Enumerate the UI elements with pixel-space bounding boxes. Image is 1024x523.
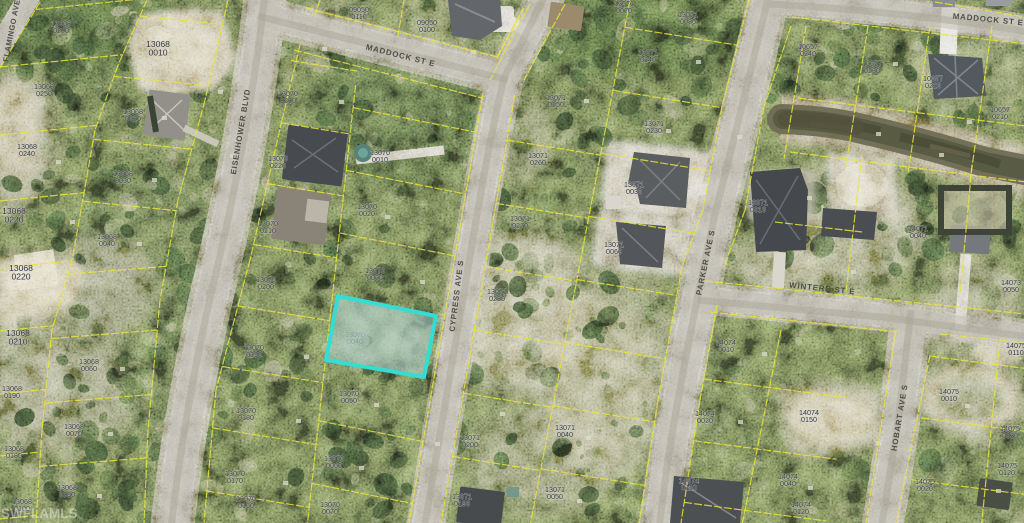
svg-text:130700060: 130700060 (324, 454, 344, 470)
svg-text:130680190: 130680190 (2, 384, 22, 400)
svg-text:140740110: 140740110 (679, 476, 699, 492)
svg-text:130700210: 130700210 (258, 219, 278, 235)
svg-text:130680230: 130680230 (2, 206, 26, 225)
svg-text:130710270: 130710270 (510, 214, 530, 230)
svg-text:130700050: 130700050 (339, 389, 359, 405)
svg-text:SWFLAMLS: SWFLAMLS (1, 506, 78, 521)
svg-text:140750010: 140750010 (939, 387, 959, 403)
svg-text:130710070: 130710070 (614, 0, 634, 15)
svg-text:130680020: 130680020 (123, 107, 143, 123)
svg-text:130710260: 130710260 (528, 151, 548, 167)
svg-text:130710060: 130710060 (604, 240, 624, 256)
svg-text:130710010: 130710010 (748, 198, 768, 214)
svg-text:130680180: 130680180 (4, 444, 24, 460)
svg-text:140750110: 140750110 (1006, 341, 1024, 357)
svg-text:130680090: 130680090 (57, 483, 77, 499)
svg-text:140740040: 140740040 (778, 472, 798, 488)
svg-text:130700200: 130700200 (256, 275, 276, 291)
svg-text:130700010: 130700010 (370, 148, 390, 164)
svg-text:130680250: 130680250 (34, 82, 54, 98)
svg-text:090500100: 090500100 (417, 18, 437, 34)
svg-text:130680010: 130680010 (146, 39, 170, 58)
svg-text:130710040: 130710040 (555, 423, 575, 439)
svg-text:130710200: 130710200 (460, 433, 480, 449)
svg-text:130710080: 130710080 (678, 10, 698, 26)
svg-text:130680220: 130680220 (9, 263, 33, 282)
svg-text:140710040: 140710040 (908, 224, 928, 240)
svg-text:130710280: 130710280 (487, 287, 507, 303)
svg-text:130710030: 130710030 (624, 180, 644, 196)
svg-text:130700190: 130700190 (244, 343, 264, 359)
svg-text:140740020: 140740020 (695, 409, 715, 425)
svg-text:130680060: 130680060 (79, 357, 99, 373)
svg-text:140740150: 140740150 (799, 408, 819, 424)
svg-text:130710050: 130710050 (545, 485, 565, 501)
svg-text:130680030: 130680030 (113, 169, 133, 185)
svg-text:140730050: 140730050 (1001, 278, 1021, 294)
svg-text:130710250: 130710250 (546, 93, 566, 109)
svg-text:130680040: 130680040 (97, 232, 117, 248)
svg-text:140740120: 140740120 (791, 500, 811, 516)
svg-text:130710240: 130710240 (638, 48, 658, 64)
svg-text:130700170: 130700170 (225, 469, 245, 485)
svg-text:130700070: 130700070 (320, 500, 340, 516)
svg-text:130710190: 130710190 (452, 492, 472, 508)
svg-text:130680070: 130680070 (64, 422, 84, 438)
svg-text:106570230: 106570230 (862, 59, 882, 75)
svg-text:130700020: 130700020 (357, 202, 377, 218)
svg-text:130700230: 130700230 (278, 89, 298, 105)
svg-text:106570210: 106570210 (990, 105, 1010, 121)
svg-text:130700220: 130700220 (268, 154, 288, 170)
svg-text:090500110: 090500110 (349, 5, 369, 21)
svg-text:130710230: 130710230 (644, 119, 664, 135)
svg-text:140750120: 140750120 (997, 461, 1017, 477)
svg-text:130680210: 130680210 (6, 328, 30, 347)
svg-text:140740010: 140740010 (716, 338, 736, 354)
svg-text:106570220: 106570220 (923, 74, 943, 90)
svg-text:130700160: 130700160 (236, 494, 256, 510)
svg-text:140750030: 140750030 (1000, 424, 1020, 440)
svg-text:130680240: 130680240 (17, 142, 37, 158)
svg-text:140750020: 140750020 (915, 477, 935, 493)
svg-text:130680200: 130680200 (51, 19, 71, 35)
svg-text:130700180: 130700180 (236, 406, 256, 422)
svg-text:130700030: 130700030 (365, 266, 385, 282)
svg-text:106570240: 106570240 (798, 42, 818, 58)
